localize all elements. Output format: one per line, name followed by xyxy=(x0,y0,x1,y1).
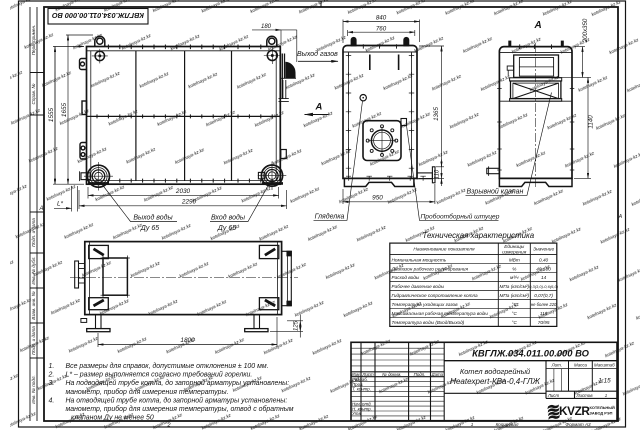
svg-text:Т. контр.: Т. контр. xyxy=(352,387,371,392)
svg-text:Инв. № подл.: Инв. № подл. xyxy=(31,375,36,404)
svg-text:Номинальная мощность: Номинальная мощность xyxy=(392,257,447,262)
svg-text:Инв. № дубл.: Инв. № дубл. xyxy=(31,256,36,284)
svg-text:Подп. и дата: Подп. и дата xyxy=(31,218,36,247)
svg-text:не более 220: не более 220 xyxy=(531,302,557,307)
svg-text:Листов: Листов xyxy=(576,393,594,398)
svg-text:Утв.: Утв. xyxy=(352,411,362,416)
svg-text:Значение: Значение xyxy=(533,247,554,253)
svg-text:Масштаб: Масштаб xyxy=(594,363,615,368)
svg-text:950: 950 xyxy=(372,195,383,202)
svg-text:Максимальная рабочая температу: Максимальная рабочая температура воды xyxy=(392,311,489,316)
svg-text:м³/ч: м³/ч xyxy=(510,275,519,280)
svg-text:110: 110 xyxy=(435,169,441,179)
svg-text:°С: °С xyxy=(512,311,518,316)
svg-text:Диапазон рабочего регулировани: Диапазон рабочего регулирования xyxy=(391,266,469,271)
svg-text:40-100: 40-100 xyxy=(536,266,551,271)
svg-text:°С: °С xyxy=(512,302,518,307)
svg-text:Температура воды (Вход/Выход): Температура воды (Вход/Выход) xyxy=(392,320,465,325)
svg-text:Перв. примен.: Перв. примен. xyxy=(31,25,36,56)
svg-text:14: 14 xyxy=(541,275,547,280)
svg-text:Лит.: Лит. xyxy=(551,363,562,368)
svg-text:1655: 1655 xyxy=(61,102,68,117)
svg-text:Гляделка: Гляделка xyxy=(315,212,345,220)
svg-text:КВГЛЖ.034.011.00.000 ВО: КВГЛЖ.034.011.00.000 ВО xyxy=(52,11,144,20)
svg-text:Формат А3: Формат А3 xyxy=(565,422,591,427)
svg-text:МВт: МВт xyxy=(509,257,520,262)
svg-text:Дата: Дата xyxy=(431,372,444,377)
svg-text:Взрывной клапан: Взрывной клапан xyxy=(467,188,524,196)
svg-text:Наименование показателя: Наименование показателя xyxy=(413,247,475,253)
svg-text:1:15: 1:15 xyxy=(598,378,611,385)
svg-text:манометр, прибор для измерения: манометр, прибор для измерения температу… xyxy=(66,405,294,413)
svg-text:2290: 2290 xyxy=(181,199,197,206)
svg-text:0,07(0,7): 0,07(0,7) xyxy=(534,293,553,298)
svg-text:4.: 4. xyxy=(49,397,55,404)
svg-text:Гидравлическое сопротивление к: Гидравлическое сопротивление котла xyxy=(392,293,479,298)
svg-text:Взам. инв. №: Взам. инв. № xyxy=(31,291,36,319)
svg-text:МПа (кгс/см²): МПа (кгс/см²) xyxy=(500,284,530,289)
svg-text:70/95: 70/95 xyxy=(538,320,550,325)
svg-text:840: 840 xyxy=(376,15,387,22)
svg-text:Температура уходящих газов: Температура уходящих газов xyxy=(392,302,459,307)
svg-text:2030: 2030 xyxy=(175,188,191,195)
svg-text:КВГЛЖ.034.011.00.000 ВО: КВГЛЖ.034.011.00.000 ВО xyxy=(472,347,590,358)
svg-text:измерения: измерения xyxy=(502,251,526,256)
svg-text:125: 125 xyxy=(294,320,300,331)
svg-text:А: А xyxy=(534,20,542,31)
svg-text:%: % xyxy=(512,266,516,271)
svg-text:Выход газов: Выход газов xyxy=(297,50,338,58)
svg-text:А: А xyxy=(315,102,323,113)
svg-text:Лист: Лист xyxy=(547,393,560,398)
svg-text:0,3(3,0)-0,6(6,0): 0,3(3,0)-0,6(6,0) xyxy=(529,284,559,289)
svg-text:На отводящей трубе котла, до з: На отводящей трубе котла, до запорной ар… xyxy=(66,396,288,404)
svg-text:Подп.: Подп. xyxy=(414,372,426,377)
svg-text:Единицы: Единицы xyxy=(504,244,525,250)
svg-text:Пробоотборный штуцер: Пробоотборный штуцер xyxy=(421,213,500,221)
svg-text:200х350: 200х350 xyxy=(582,18,589,43)
svg-text:1555: 1555 xyxy=(48,107,55,122)
svg-text:МПа (кгс/см²): МПа (кгс/см²) xyxy=(500,293,530,298)
svg-text:ЗАВОД РЭП: ЗАВОД РЭП xyxy=(590,411,613,416)
svg-text:КОТЕЛЬНЫЙ: КОТЕЛЬНЫЙ xyxy=(590,405,616,410)
svg-text:Вход воды: Вход воды xyxy=(211,214,246,222)
svg-text:1: 1 xyxy=(471,422,474,427)
svg-text:Котел водогрейный: Котел водогрейный xyxy=(460,367,530,376)
svg-text:KVZR: KVZR xyxy=(559,404,590,418)
svg-text:На подводящей трубе котла, до: На подводящей трубе котла, до запорной а… xyxy=(66,379,290,387)
svg-text:Рабочее давление воды: Рабочее давление воды xyxy=(392,284,445,289)
svg-text:Все размеры для справок, допус: Все размеры для справок, допустимые откл… xyxy=(66,362,269,370)
svg-text:Ду 65: Ду 65 xyxy=(140,225,159,232)
svg-text:манометр, прибор для измерения: манометр, прибор для измерения температу… xyxy=(66,388,229,396)
svg-text:1140: 1140 xyxy=(587,115,594,129)
svg-text:А: А xyxy=(618,214,623,220)
svg-text:Копировал: Копировал xyxy=(496,422,519,427)
svg-text:Heatexpert-КВа-0,4-ГЛЖ: Heatexpert-КВа-0,4-ГЛЖ xyxy=(450,377,540,386)
svg-text:2: 2 xyxy=(166,423,170,429)
svg-text:Масса: Масса xyxy=(574,363,588,368)
svg-text:2.: 2. xyxy=(48,372,55,379)
svg-text:0,40: 0,40 xyxy=(539,257,549,262)
svg-text:Ду 65: Ду 65 xyxy=(217,225,236,232)
svg-text:клапаном Ду не менее 50: клапаном Ду не менее 50 xyxy=(71,414,154,421)
svg-text:L* – размер выполняется соглас: L* – размер выполняется согласно требова… xyxy=(66,371,253,379)
svg-text:760: 760 xyxy=(376,25,387,32)
svg-text:3.: 3. xyxy=(49,380,55,387)
svg-text:Расход воды: Расход воды xyxy=(392,275,420,280)
svg-text:1800: 1800 xyxy=(180,337,195,344)
svg-text:180: 180 xyxy=(261,24,272,30)
svg-text:1365: 1365 xyxy=(433,107,440,121)
svg-text:Выход воды: Выход воды xyxy=(133,214,173,222)
svg-text:Справ. №: Справ. № xyxy=(31,84,36,105)
svg-text:1.: 1. xyxy=(49,363,55,370)
svg-text:А: А xyxy=(38,206,43,212)
svg-text:№ докум.: № докум. xyxy=(382,372,401,377)
svg-text:115: 115 xyxy=(540,311,548,316)
svg-text:L*: L* xyxy=(57,201,64,208)
svg-text:Подп. и дата: Подп. и дата xyxy=(31,326,36,355)
svg-text:°С: °С xyxy=(512,320,518,325)
svg-text:Техническая характеристика: Техническая характеристика xyxy=(422,231,534,240)
